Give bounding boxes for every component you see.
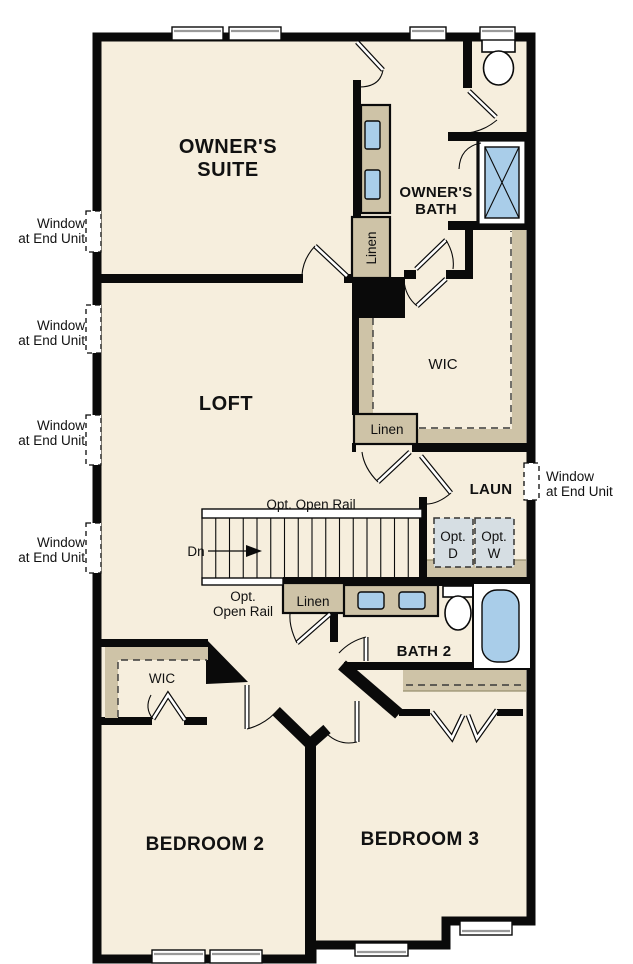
tub-bath2 (473, 583, 531, 669)
owners-suite-label-2: SUITE (197, 159, 258, 181)
open-rail-bottom-label-1: Opt. (230, 589, 256, 604)
window-note-left-4: Window at End Unit (18, 535, 85, 565)
wic-lower-label: WIC (149, 671, 175, 686)
svg-text:at End Unit: at End Unit (18, 433, 85, 448)
owners-bath-label-1: OWNER'S (399, 184, 472, 201)
stairs-down-label: Dn (187, 544, 204, 559)
opt-washer-label-1: Opt. (481, 529, 507, 544)
optional-window-left-4 (86, 523, 101, 573)
shower-owners-bath (478, 140, 526, 225)
chase (352, 277, 405, 318)
optional-window-left-3 (86, 415, 101, 465)
wic-upper-label: WIC (428, 356, 457, 373)
open-rail-bottom-label-2: Open Rail (213, 604, 273, 619)
floor-plan-page: OWNER'S SUITE OWNER'S BATH LOFT WIC LAUN… (0, 0, 633, 964)
window-note-left-3: Window at End Unit (18, 418, 85, 448)
toilet-owners-bath (482, 39, 515, 85)
opt-washer-label-2: W (488, 546, 501, 561)
svg-text:at End Unit: at End Unit (18, 231, 85, 246)
sink-owners-1 (365, 121, 380, 149)
svg-text:Window: Window (37, 318, 85, 333)
sink-bath2-2 (399, 592, 425, 609)
bedroom-divider-wall (305, 742, 316, 959)
stair-rail-bottom (202, 578, 283, 585)
toilet-bath2 (443, 586, 473, 630)
optional-window-right (524, 463, 539, 500)
owners-suite-label-1: OWNER'S (179, 136, 277, 158)
opt-dryer-label-1: Opt. (440, 529, 466, 544)
window-note-left-2: Window at End Unit (18, 318, 85, 348)
window-top-1 (172, 27, 223, 40)
svg-text:Window: Window (37, 216, 85, 231)
bedroom3-closet-shelf (403, 670, 526, 691)
window-bottom-3 (355, 943, 408, 956)
optional-window-left-1 (86, 211, 101, 252)
owners-bath-label-2: BATH (415, 201, 457, 218)
bedroom3-label: BEDROOM 3 (361, 829, 480, 850)
bedroom2-label: BEDROOM 2 (146, 834, 265, 855)
window-note-left-1: Window at End Unit (18, 216, 85, 246)
bedroom2-wic-shelf (105, 647, 208, 660)
open-rail-top-label: Opt. Open Rail (266, 497, 355, 512)
window-note-right: Window at End Unit (546, 469, 613, 499)
laundry-label: LAUN (470, 481, 513, 498)
sink-bath2-1 (358, 592, 384, 609)
window-bottom-1 (152, 950, 205, 963)
opt-dryer-label-2: D (448, 546, 458, 561)
window-top-2 (229, 27, 281, 40)
svg-text:Window: Window (546, 469, 594, 484)
svg-text:at End Unit: at End Unit (546, 484, 613, 499)
linen2-label: Linen (370, 422, 403, 437)
linen1-label: Linen (364, 231, 379, 264)
svg-text:at End Unit: at End Unit (18, 550, 85, 565)
svg-text:Window: Window (37, 535, 85, 550)
bath2-label: BATH 2 (397, 643, 452, 660)
linen3-label: Linen (296, 594, 329, 609)
floor-plan-drawing: OWNER'S SUITE OWNER'S BATH LOFT WIC LAUN… (0, 0, 633, 964)
loft-label: LOFT (199, 393, 253, 415)
svg-text:Window: Window (37, 418, 85, 433)
svg-text:at End Unit: at End Unit (18, 333, 85, 348)
window-bottom-2 (210, 950, 262, 963)
optional-window-left-2 (86, 305, 101, 353)
window-top-3 (410, 27, 446, 40)
window-top-4 (480, 27, 515, 40)
sink-owners-2 (365, 170, 380, 199)
window-bottom-4 (460, 921, 512, 935)
